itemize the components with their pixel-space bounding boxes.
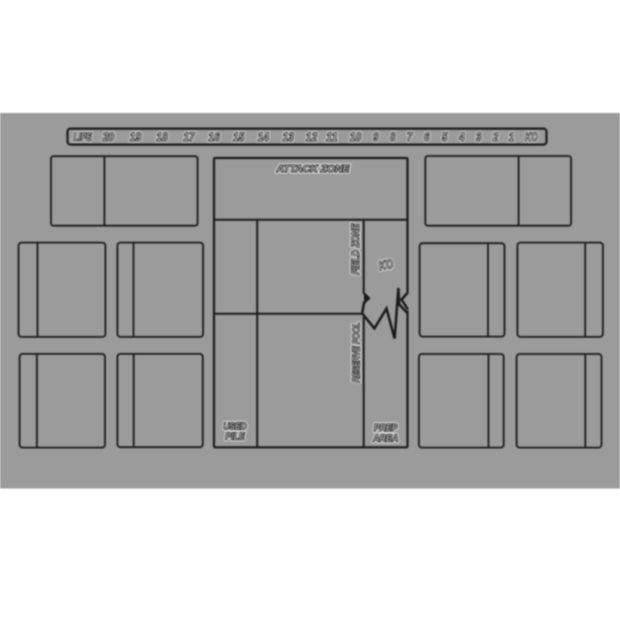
svg-text:1: 1: [509, 130, 515, 144]
svg-text:8: 8: [390, 130, 396, 144]
svg-text:4: 4: [458, 130, 464, 144]
svg-text:9: 9: [373, 130, 379, 144]
svg-text:6: 6: [424, 130, 430, 144]
svg-text:PREP: PREP: [374, 423, 398, 434]
svg-text:KO: KO: [525, 130, 538, 144]
svg-text:10: 10: [350, 130, 362, 144]
svg-text:13: 13: [282, 130, 294, 144]
svg-text:7: 7: [407, 130, 413, 144]
svg-text:18: 18: [156, 130, 168, 144]
svg-text:20: 20: [102, 130, 114, 144]
svg-text:ATTACK ZONE: ATTACK ZONE: [275, 164, 350, 175]
svg-text:12: 12: [306, 130, 318, 144]
svg-text:2: 2: [492, 130, 498, 144]
svg-text:LIFE: LIFE: [73, 131, 92, 143]
svg-text:17: 17: [183, 130, 195, 144]
svg-text:14: 14: [257, 130, 269, 144]
svg-text:11: 11: [326, 130, 338, 144]
svg-text:KO: KO: [377, 257, 394, 274]
svg-text:15: 15: [233, 130, 245, 144]
svg-text:AREA: AREA: [372, 433, 398, 444]
svg-text:19: 19: [130, 130, 142, 144]
svg-text:3: 3: [476, 130, 482, 144]
svg-text:16: 16: [208, 130, 220, 144]
svg-text:PILE: PILE: [225, 432, 245, 443]
svg-text:FIELD ZONE: FIELD ZONE: [350, 223, 362, 275]
svg-text:5: 5: [442, 130, 448, 144]
svg-text:RESERVE POOL: RESERVE POOL: [352, 323, 363, 383]
